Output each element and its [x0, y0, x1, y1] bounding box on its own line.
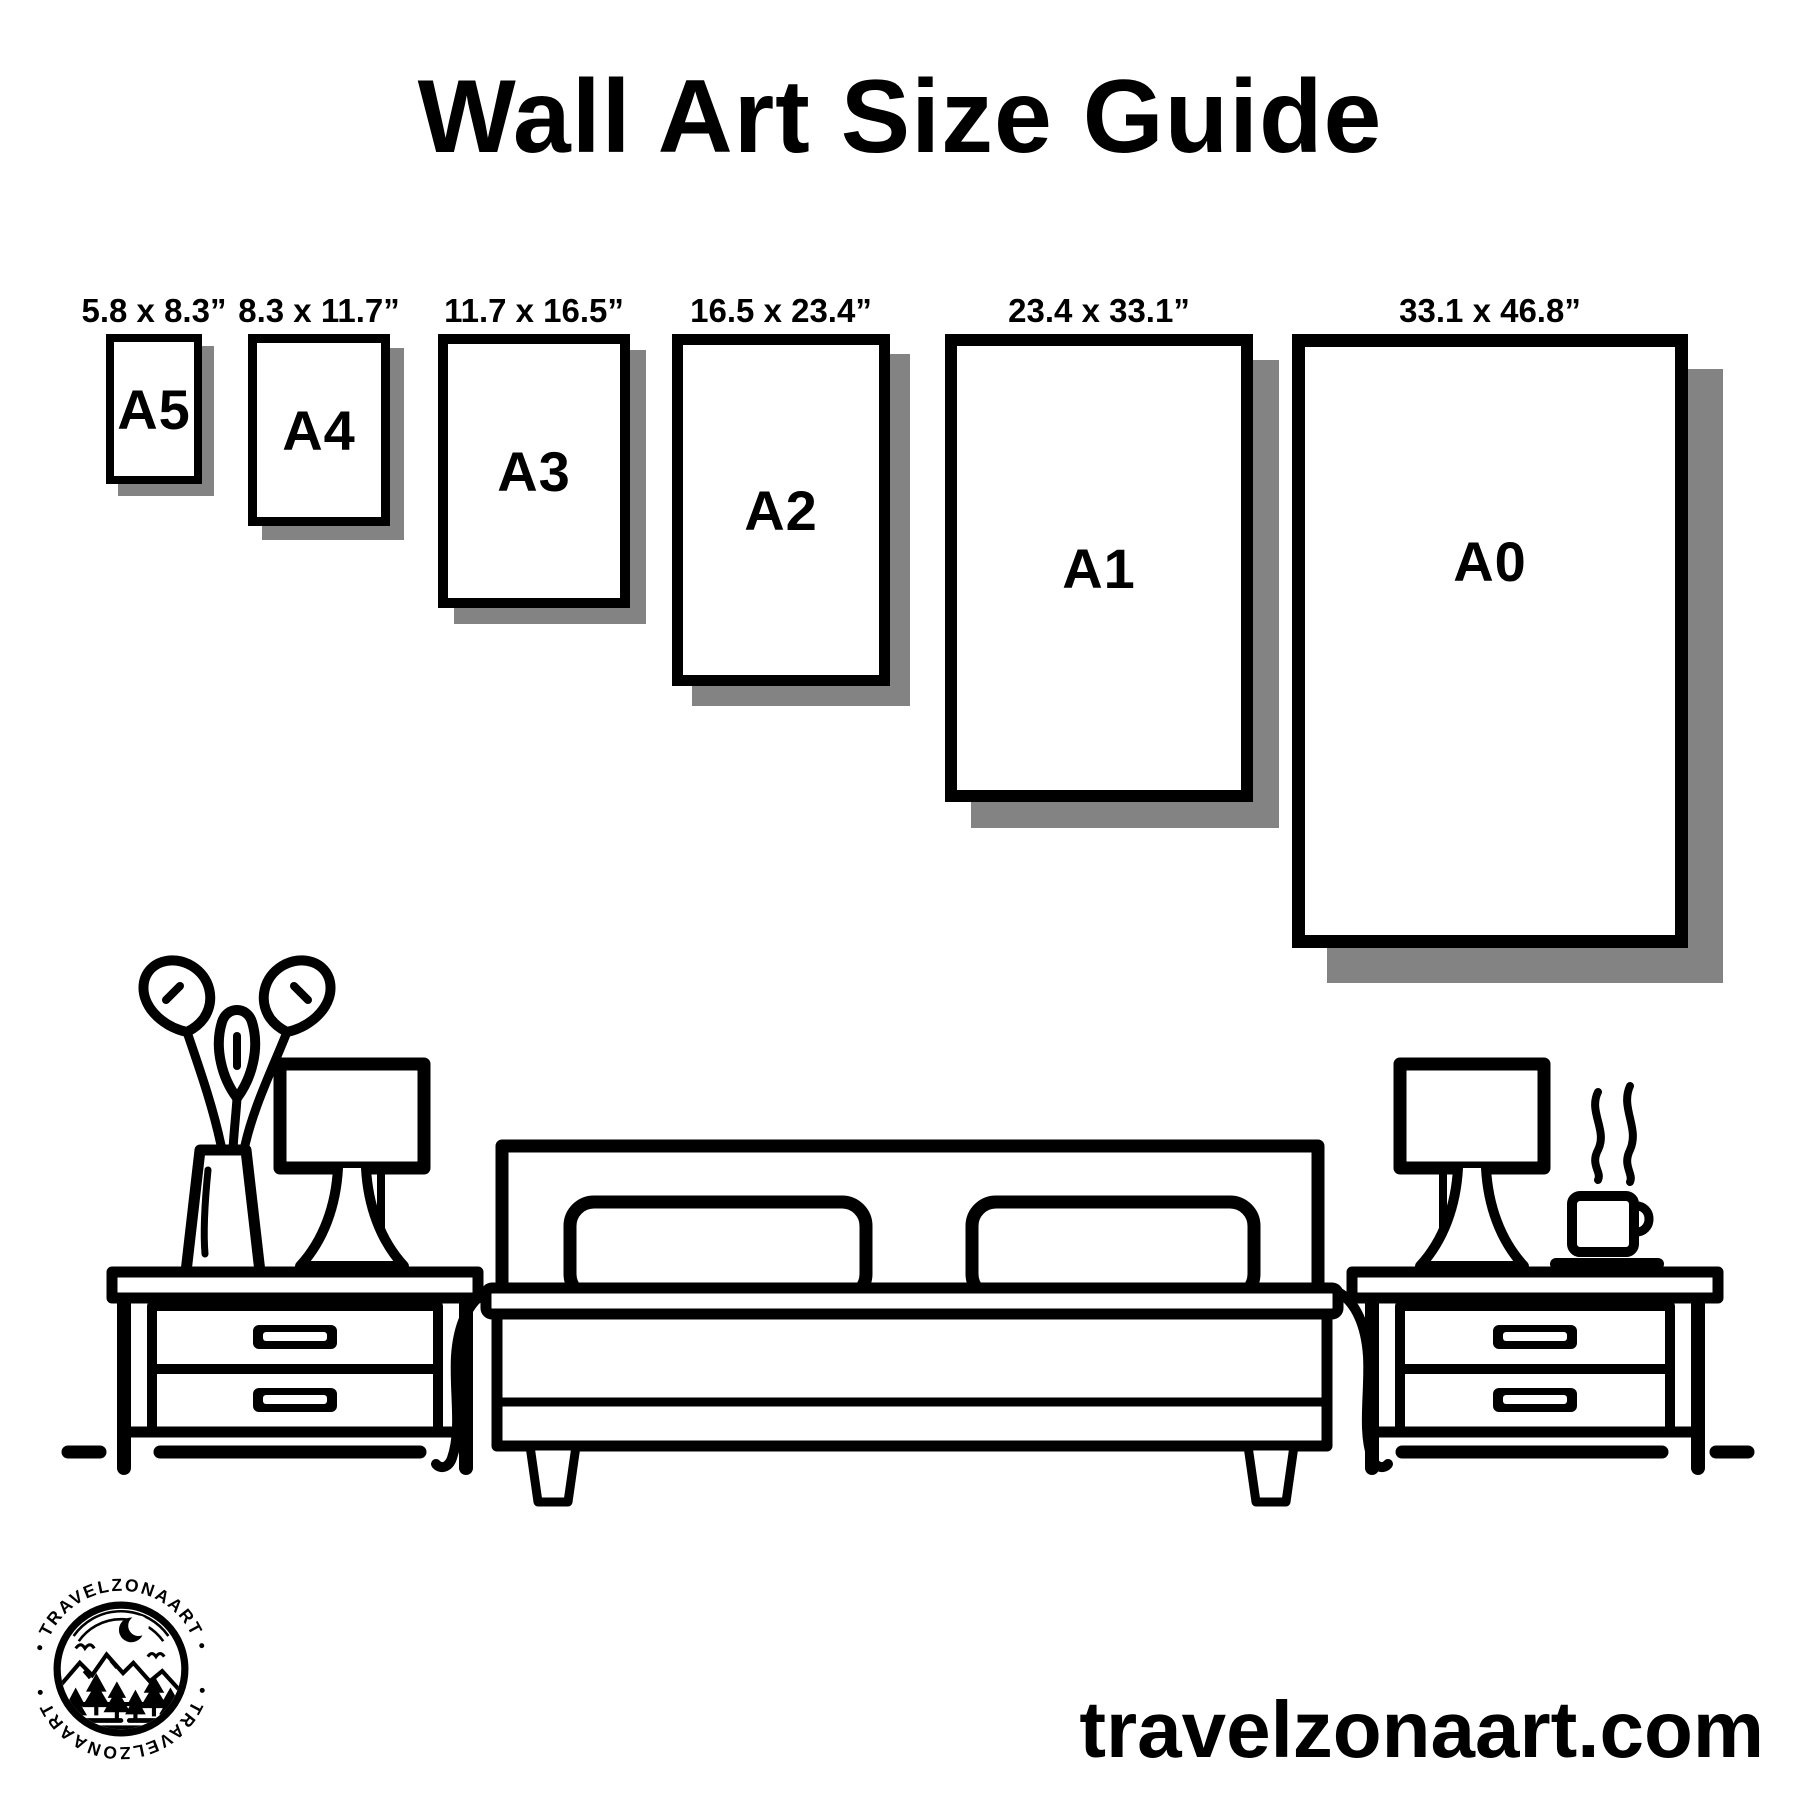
size-frame-a5: A5: [106, 334, 202, 484]
size-frame-a0: A0: [1292, 334, 1688, 948]
leaf-right: [264, 960, 331, 1032]
size-frame-a2: A2: [672, 334, 890, 686]
bed-base: [497, 1314, 1327, 1446]
nightstand-top: [1352, 1272, 1718, 1298]
lamp-stem: [300, 1168, 404, 1266]
cup-body: [1572, 1196, 1634, 1252]
table-lamp-right-icon: [1400, 1064, 1544, 1266]
size-frame-a4: A4: [248, 334, 390, 526]
vase: [186, 1150, 260, 1272]
bed-icon: [436, 1146, 1388, 1502]
size-frame-letter-a5: A5: [117, 377, 191, 442]
size-frame-a1: A1: [945, 334, 1253, 802]
table-lamp-left-icon: [280, 1064, 424, 1266]
nightstand-right-icon: [1352, 1272, 1718, 1468]
coffee-cup-icon: [1556, 1086, 1658, 1264]
leaf-left: [143, 960, 210, 1032]
size-frame-letter-a3: A3: [497, 439, 571, 504]
size-label-a0: 33.1 x 46.8”: [1340, 292, 1640, 330]
size-frame-letter-a4: A4: [282, 398, 356, 463]
blanket-drape-right: [1338, 1292, 1388, 1467]
steam-icon: [1595, 1092, 1601, 1180]
website-url: travelzonaart.com: [1079, 1684, 1764, 1776]
size-frame-letter-a0: A0: [1453, 529, 1527, 594]
lamp-shade: [1400, 1064, 1544, 1168]
bedroom-scene-illustration: [0, 930, 1800, 1520]
nightstand-top: [112, 1272, 478, 1298]
size-label-a2: 16.5 x 23.4”: [631, 292, 931, 330]
size-frame-letter-a2: A2: [744, 478, 818, 543]
size-frame-a3: A3: [438, 334, 630, 608]
bed-leg-right: [1248, 1446, 1294, 1502]
lamp-shade: [280, 1064, 424, 1168]
page-title: Wall Art Size Guide: [0, 58, 1800, 177]
nightstand-left-icon: [112, 1272, 478, 1468]
size-label-a1: 23.4 x 33.1”: [949, 292, 1249, 330]
logo-badge: • TRAVELZONAART • • TRAVELZONAART •: [18, 1566, 224, 1772]
size-frame-letter-a1: A1: [1062, 536, 1136, 601]
lamp-stem: [1420, 1168, 1524, 1266]
steam-icon: [1627, 1086, 1633, 1182]
wall-art-size-guide-page: Wall Art Size Guide 5.8 x 8.3” 8.3 x 11.…: [0, 0, 1800, 1800]
bed-leg-left: [530, 1446, 576, 1502]
